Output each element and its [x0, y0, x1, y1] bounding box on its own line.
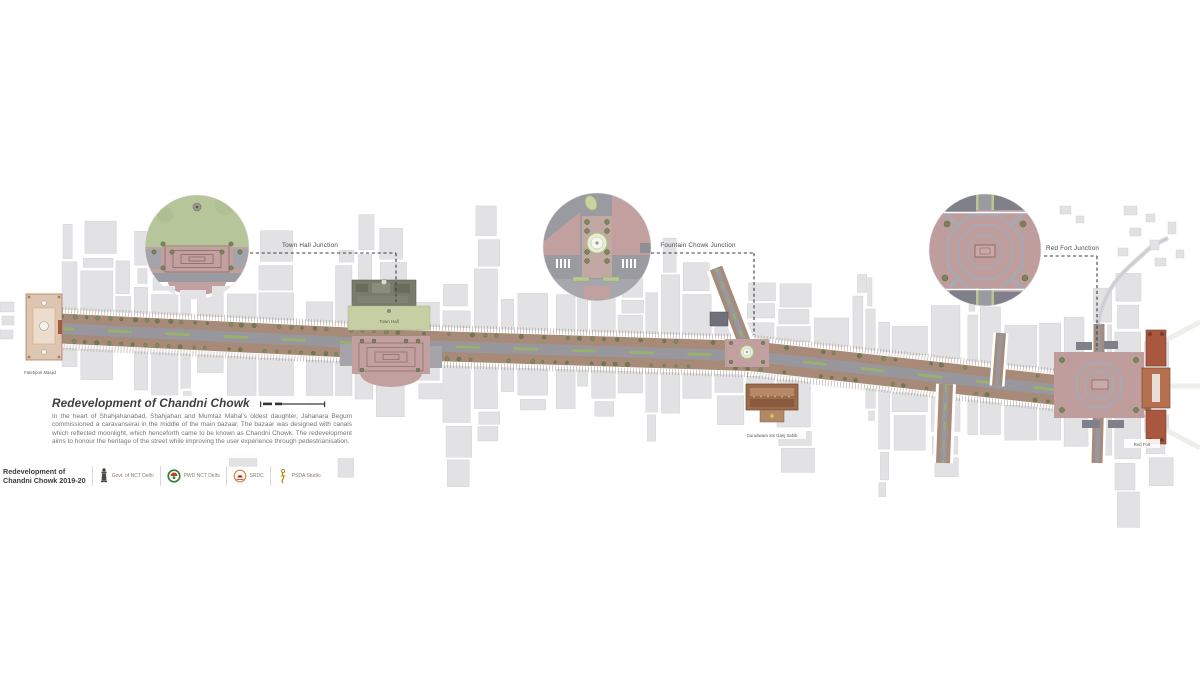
fabric-block — [683, 294, 712, 335]
street-tree — [891, 382, 894, 385]
street-tree — [206, 322, 209, 325]
fabric-block — [83, 258, 113, 267]
fabric-block — [647, 415, 655, 441]
fabric-block — [892, 393, 927, 412]
fabric-block — [181, 354, 191, 389]
logo-label: SRDC — [250, 473, 264, 479]
street-tree — [495, 334, 499, 338]
street-tree — [194, 321, 197, 324]
street-tree — [625, 362, 629, 366]
logo-label: PSDA Studio — [292, 473, 321, 479]
page-title: Redevelopment of Chandni Chowk — [52, 396, 250, 410]
fabric-block — [595, 402, 614, 417]
fabric-block — [622, 300, 644, 313]
fabric-block — [474, 367, 497, 409]
fabric-block — [747, 304, 774, 319]
street-tree — [324, 327, 328, 331]
street-tree — [384, 330, 388, 334]
street-tree — [566, 336, 570, 340]
fabric-block — [479, 412, 500, 424]
fabric-block — [931, 306, 960, 359]
street-tree — [821, 350, 825, 354]
street-tree — [239, 323, 243, 327]
street-tree — [577, 336, 581, 340]
street-tree — [832, 351, 836, 355]
street-tree — [930, 362, 933, 365]
fabric-block — [866, 389, 876, 409]
red-fort-junction-label: Red Fort Junction — [1046, 245, 1099, 252]
street-tree — [447, 333, 450, 336]
gurudwara-label: Gurudwara Sis Ganj Sahib — [747, 433, 798, 438]
street-tree — [299, 351, 302, 354]
fabric-block — [62, 348, 77, 367]
street-tree — [470, 333, 475, 338]
govt-nct-delhi-emblem-icon — [99, 468, 109, 484]
street-tree — [229, 322, 233, 326]
street-tree — [311, 351, 315, 355]
street-tree — [901, 384, 905, 388]
street-tree — [133, 318, 138, 323]
project-description: In the heart of Shahjahanabad, Shahjahan… — [52, 413, 352, 447]
street-tree — [144, 343, 148, 347]
street-tree — [819, 375, 822, 378]
title-block: Redevelopment of Chandni Chowk In the he… — [52, 396, 352, 447]
fabric-block — [556, 369, 575, 408]
fabric-block — [259, 266, 293, 291]
fabric-block — [501, 367, 513, 391]
street-tree — [301, 326, 304, 329]
street-tree — [830, 376, 833, 379]
street-tree — [228, 348, 231, 351]
street-tree — [894, 358, 897, 361]
street-tree — [396, 331, 400, 335]
fabric-block — [880, 452, 889, 480]
street-tree — [615, 338, 619, 342]
fabric-block — [338, 455, 354, 477]
street-tree — [288, 350, 291, 353]
street-tree — [650, 364, 653, 367]
fabric-block — [447, 460, 469, 487]
statue-icon — [381, 279, 387, 285]
project-name-line1: Redevelopment of — [3, 467, 86, 476]
fabric-block — [781, 448, 814, 472]
fabric-block — [857, 274, 866, 292]
fountain-chowk-junction-label: Fountain Chowk Junction — [660, 242, 736, 249]
street-tree — [674, 339, 678, 343]
fatehpuri-masjid-landmark: Fatehpuri Masjid — [24, 294, 62, 375]
street-tree — [602, 362, 606, 366]
fabric-block — [780, 284, 811, 307]
fabric-block — [306, 302, 333, 322]
fabric-block — [152, 295, 179, 315]
street-tree — [155, 319, 159, 323]
footer-divider — [160, 466, 161, 486]
street-tree — [675, 365, 678, 368]
street-tree — [457, 357, 461, 361]
fabric-block — [869, 411, 875, 421]
fabric-block — [618, 315, 643, 333]
pwd-nct-delhi-logo-icon — [167, 469, 181, 483]
church-building — [710, 312, 728, 326]
fabric-block — [749, 283, 776, 301]
street-tree — [73, 315, 77, 319]
street-tree — [252, 323, 256, 327]
project-name-line2: Chandni Chowk 2019-20 — [3, 476, 86, 485]
left-edge-blocks — [0, 302, 14, 339]
fabric-block — [501, 299, 513, 329]
street-tree — [843, 377, 846, 380]
fabric-block — [556, 295, 575, 332]
fabric-block — [358, 254, 371, 282]
street-tree — [96, 316, 100, 320]
poster-canvas: Town Hall — [0, 0, 1200, 675]
street-tree — [602, 337, 605, 340]
street-tree — [985, 392, 990, 397]
fabric-block — [779, 309, 809, 324]
street-tree — [289, 325, 293, 329]
fabric-block — [138, 269, 147, 284]
gurudwara-dome-icon — [770, 414, 774, 418]
street-tree — [507, 359, 511, 363]
fabric-block — [116, 261, 130, 294]
fabric-block — [715, 374, 743, 392]
fabric-block — [968, 315, 978, 362]
fabric-block — [85, 221, 117, 253]
street-tree — [373, 330, 376, 333]
project-name: Redevelopment of Chandni Chowk 2019-20 — [3, 467, 86, 486]
street-tree — [783, 371, 786, 374]
fabric-block — [1118, 305, 1139, 328]
scale-bar — [260, 399, 328, 408]
town-hall-junction-label: Town Hall Junction — [282, 242, 338, 249]
logo-label: PWD NCT Delhi — [184, 473, 220, 479]
street-tree — [107, 341, 111, 345]
psda-studio-logo-icon — [277, 468, 289, 484]
street-tree — [178, 345, 182, 349]
street-tree — [275, 350, 278, 353]
logo-psda-studio: PSDA Studio — [277, 468, 321, 484]
fabric-block — [646, 293, 658, 334]
street-tree — [169, 319, 173, 323]
street-tree — [131, 343, 135, 347]
mosque-dome-icon — [40, 322, 49, 331]
street-tree — [263, 349, 266, 352]
street-tree — [167, 344, 170, 347]
street-tree — [975, 392, 978, 395]
chandni-chowk-plan: Town Hall — [0, 0, 1200, 675]
logo-pwd-nct-delhi: PWD NCT Delhi — [167, 469, 220, 483]
fabric-block — [879, 483, 886, 497]
street-tree — [531, 359, 535, 363]
street-tree — [613, 362, 617, 366]
fabric-block — [646, 372, 658, 412]
street-tree — [238, 348, 242, 352]
street-tree — [1046, 400, 1049, 403]
footer-divider — [226, 466, 227, 486]
street-tree — [324, 352, 328, 356]
fabric-block — [1117, 492, 1139, 527]
street-tree — [854, 378, 858, 382]
fabric-block — [134, 352, 148, 391]
fabric-block — [443, 311, 470, 328]
street-tree — [484, 334, 488, 338]
fabric-block — [520, 399, 545, 410]
fabric-block — [618, 371, 643, 393]
fabric-block — [879, 322, 890, 352]
street-tree — [784, 346, 788, 350]
fabric-block — [1149, 458, 1173, 486]
fabric-block — [197, 355, 223, 373]
fabric-block — [443, 284, 467, 306]
fabric-block — [359, 215, 374, 250]
street-tree — [109, 317, 112, 320]
street-tree — [639, 338, 643, 342]
logo-govt-nct-delhi: Govt. of NCT Delhi — [99, 468, 154, 484]
street-tree — [72, 339, 76, 343]
street-tree — [83, 340, 86, 343]
fabric-block — [81, 271, 113, 312]
street-tree — [663, 339, 667, 343]
street-tree — [1036, 374, 1039, 377]
fabric-block — [306, 360, 333, 396]
fabric-block — [814, 318, 849, 346]
fabric-block — [81, 349, 113, 379]
footer-divider — [92, 466, 93, 486]
fabric-block — [894, 416, 925, 451]
fabric-block — [592, 370, 616, 398]
fabric-block — [419, 384, 442, 399]
fabric-block — [980, 402, 1000, 435]
footer: Redevelopment of Chandni Chowk 2019-20 G… — [3, 461, 321, 491]
fabric-block — [518, 368, 548, 395]
street-tree — [759, 368, 762, 371]
street-tree — [963, 366, 967, 370]
street-tree — [939, 363, 943, 367]
street-tree — [120, 318, 123, 321]
street-tree — [541, 360, 544, 363]
street-tree — [85, 316, 88, 319]
logo-label: Govt. of NCT Delhi — [112, 473, 154, 479]
fabric-block — [518, 293, 548, 330]
fatehpuri-label: Fatehpuri Masjid — [24, 370, 56, 375]
fabric-block — [134, 287, 148, 313]
fabric-block — [968, 400, 978, 435]
fabric-block — [446, 426, 472, 457]
fabric-block — [717, 396, 744, 425]
fabric-block — [63, 224, 72, 258]
street-tree — [155, 343, 159, 347]
footer-divider — [270, 466, 271, 486]
fabric-block — [683, 373, 712, 398]
street-tree — [145, 318, 149, 322]
street-tree — [542, 335, 546, 339]
street-tree — [469, 358, 472, 361]
street-tree — [193, 346, 196, 349]
street-tree — [519, 334, 524, 339]
fabric-block — [62, 262, 77, 310]
fabric-block — [1115, 463, 1135, 490]
fabric-block — [892, 326, 927, 355]
fabric-block — [683, 263, 709, 291]
red-fort-label: Red Fort — [1134, 442, 1152, 447]
callout-red-fort-junction — [929, 194, 1041, 306]
street-tree — [711, 340, 715, 344]
street-tree — [120, 342, 123, 345]
fabric-block — [661, 373, 679, 414]
street-tree — [590, 362, 593, 365]
fabric-block — [474, 269, 497, 329]
fabric-block — [879, 390, 890, 449]
red-fort-junction-plaza — [1054, 341, 1144, 428]
fabric-block — [853, 296, 863, 349]
street-tree — [422, 332, 425, 335]
town-hall-label: Town Hall — [379, 319, 399, 324]
street-tree — [277, 325, 281, 329]
fabric-block — [866, 309, 876, 351]
street-tree — [925, 387, 928, 390]
street-tree — [95, 340, 100, 345]
fabric-block — [1005, 325, 1037, 367]
street-tree — [203, 346, 206, 349]
street-tree — [554, 361, 557, 364]
fabric-block — [380, 228, 403, 259]
fabric-block — [868, 278, 872, 306]
street-tree — [882, 356, 886, 360]
street-tree — [857, 353, 862, 358]
fabric-block — [661, 275, 679, 335]
fabric-block — [478, 240, 499, 267]
logo-srdc: SRDC — [233, 469, 264, 483]
street-tree — [313, 327, 317, 331]
fabric-block — [1005, 405, 1037, 440]
fabric-block — [578, 370, 588, 386]
fabric-block — [478, 427, 498, 442]
street-tree — [565, 361, 568, 364]
street-tree — [180, 320, 184, 324]
srdc-logo-icon — [233, 469, 247, 483]
street-tree — [334, 353, 338, 357]
street-tree — [663, 364, 666, 367]
fabric-block — [476, 206, 497, 236]
fabric-block — [227, 294, 256, 318]
street-tree — [687, 365, 690, 368]
fabric-block — [152, 353, 179, 396]
fabric-block — [443, 366, 470, 423]
fabric-block — [259, 293, 294, 320]
street-tree — [590, 337, 594, 341]
street-tree — [445, 357, 449, 361]
fabric-block — [339, 250, 353, 262]
street-tree — [1033, 398, 1037, 402]
